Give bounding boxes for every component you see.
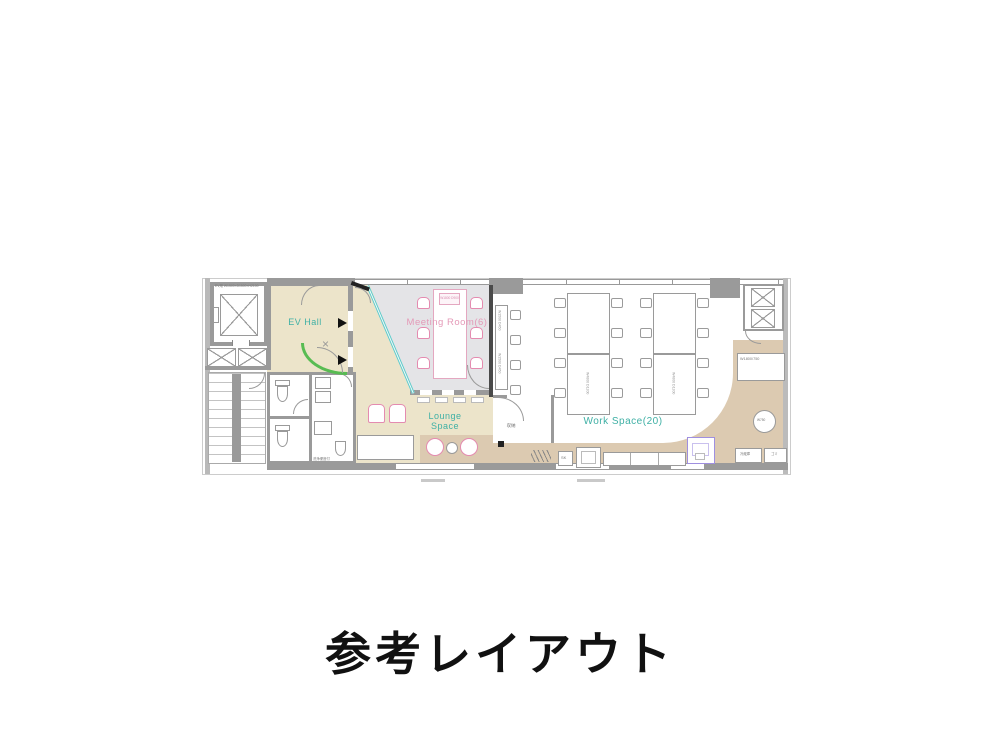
copier-inner (581, 451, 596, 464)
work-chair (510, 335, 521, 345)
wall-top-left (267, 278, 355, 286)
work-counter-dim-2: W1500 D450 (497, 353, 501, 373)
cross-mark: × (322, 337, 329, 351)
work-chair (554, 328, 566, 338)
wall-bottom (267, 463, 788, 470)
meeting-chair (417, 357, 430, 369)
elevator-counterweight (213, 307, 219, 323)
lounge-stool-2 (389, 404, 406, 423)
glass-panel-2 (441, 390, 455, 395)
work-chair (611, 388, 623, 398)
glass-panel-1 (419, 390, 433, 395)
work-chair (640, 298, 652, 308)
work-chair (554, 388, 566, 398)
hatch-mark (531, 450, 551, 462)
work-chair (697, 298, 709, 308)
work-chair (697, 358, 709, 368)
work-chair (640, 388, 652, 398)
dim-text-bottom-1 (421, 479, 445, 482)
work-chair (510, 360, 521, 370)
wc-bowl-3 (335, 441, 346, 456)
dim-tick-4 (471, 397, 484, 403)
dim-tick-1 (417, 397, 430, 403)
window-bottom-1 (395, 464, 475, 469)
work-chair (640, 358, 652, 368)
wall-annex-right (551, 395, 554, 443)
meeting-table-dim: W1800 D900 (440, 297, 459, 301)
vanity-2 (315, 391, 331, 403)
lounge-counter (357, 435, 414, 460)
work-chair (611, 358, 623, 368)
work-counter-dim-1: W1500 D450 (497, 310, 501, 330)
toilet-divider-h (267, 416, 311, 419)
dim-text-bottom-2 (577, 479, 605, 482)
cabinet-divider-2 (658, 453, 659, 465)
wall-stub-b (710, 278, 740, 298)
wc-bowl-1 (277, 386, 288, 402)
work-space-label: Work Space(20) (573, 416, 673, 427)
stair-landing-wall (232, 374, 241, 462)
vanity-3 (314, 421, 332, 435)
pipe-shaft-1 (207, 348, 236, 367)
lounge-stool-1 (368, 404, 385, 423)
lounge-pouf-2 (460, 438, 478, 456)
ev-hall-label: EV Hall (279, 317, 331, 327)
pipe-shaft-2 (238, 348, 267, 367)
work-desk-b1 (653, 293, 696, 354)
vanity-1 (315, 377, 331, 389)
elevator-car (220, 294, 258, 336)
work-chair (611, 328, 623, 338)
meeting-chair (417, 297, 430, 309)
meeting-chair (417, 327, 430, 339)
storage-label: 収納 (498, 424, 524, 429)
work-chair (697, 328, 709, 338)
work-chair (554, 358, 566, 368)
fridge-label: 冷蔵庫 (740, 453, 750, 457)
work-desk-dim-a: W4800 D1200 (585, 372, 589, 394)
dim-tick-3 (453, 397, 466, 403)
wc-note-label: 洗浄便座付 (313, 458, 353, 462)
wall-stub-a (489, 278, 523, 294)
dim-tick-2 (435, 397, 448, 403)
meeting-chair (470, 327, 483, 339)
work-chair (510, 385, 521, 395)
work-desk-dim-b: W4800 D1200 (671, 372, 675, 394)
work-chair (611, 298, 623, 308)
page-title: 参考レイアウト (0, 618, 1000, 684)
work-chair (510, 310, 521, 320)
work-desk-a1 (567, 293, 610, 354)
work-chair (640, 328, 652, 338)
floor-plan: EV用 W1500×D1500×H2100 洗浄便座付 EV Hall × W1… (205, 277, 788, 483)
glass-panel-3 (463, 390, 477, 395)
lounge-pouf-1 (426, 438, 444, 456)
lounge-side-table (446, 442, 458, 454)
wc-bowl-2 (277, 431, 288, 447)
cabinet-divider-1 (630, 453, 631, 465)
wall-workspace-left (489, 285, 493, 397)
low-cabinet (603, 452, 686, 466)
work-chair (697, 388, 709, 398)
entry-arrow-1 (338, 318, 347, 328)
side-counter-dim: W1800/750 (740, 357, 759, 361)
door-opening-1 (348, 311, 353, 331)
service-unit-2 (751, 309, 775, 328)
meeting-chair (470, 297, 483, 309)
lounge-label: Lounge Space (413, 411, 477, 431)
service-unit-1 (751, 288, 775, 307)
elevator-spec-label: EV用 W1500×D1500×H2100 (215, 285, 265, 289)
elevator-door (232, 340, 250, 346)
door-stop-dark (498, 441, 504, 447)
sink-label: SK (561, 456, 566, 460)
door-opening-2 (348, 347, 353, 367)
booth-chair (695, 453, 705, 460)
round-table-dim: W750 (757, 419, 765, 423)
meeting-chair (470, 357, 483, 369)
work-chair (554, 298, 566, 308)
trash-label: ゴミ (771, 453, 778, 457)
entry-arrow-2 (338, 355, 347, 365)
meeting-table-tag: W1800 D900 (439, 293, 460, 305)
